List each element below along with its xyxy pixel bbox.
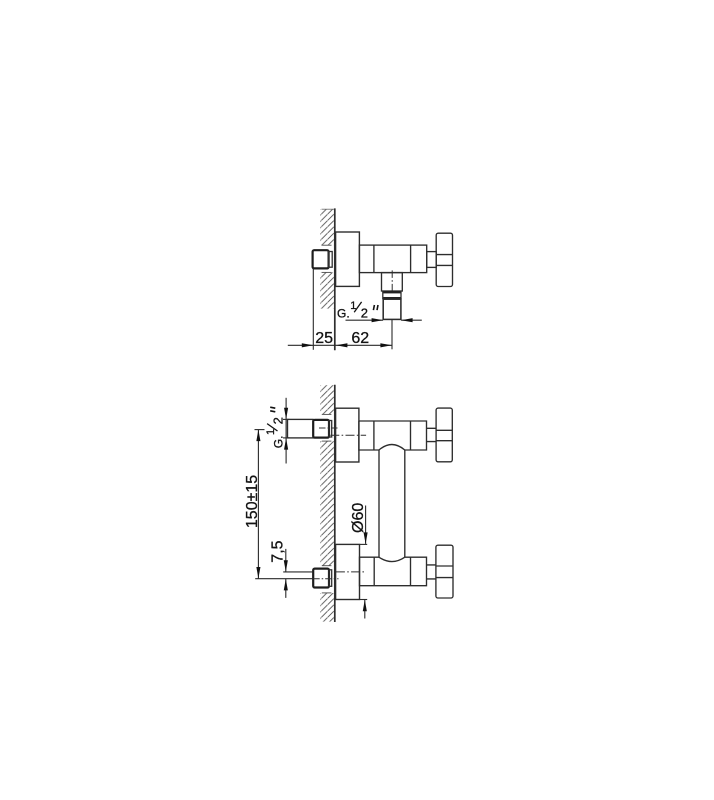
svg-text:2: 2	[271, 417, 286, 424]
svg-text:Ø60: Ø60	[350, 503, 367, 533]
svg-text:25: 25	[315, 330, 333, 347]
svg-text:7,5: 7,5	[270, 540, 287, 562]
svg-text:62: 62	[351, 330, 369, 347]
svg-text:2: 2	[361, 306, 368, 321]
svg-text:150±15: 150±15	[244, 475, 261, 528]
svg-text:G.: G.	[272, 436, 286, 449]
svg-text:G.: G.	[337, 307, 350, 321]
